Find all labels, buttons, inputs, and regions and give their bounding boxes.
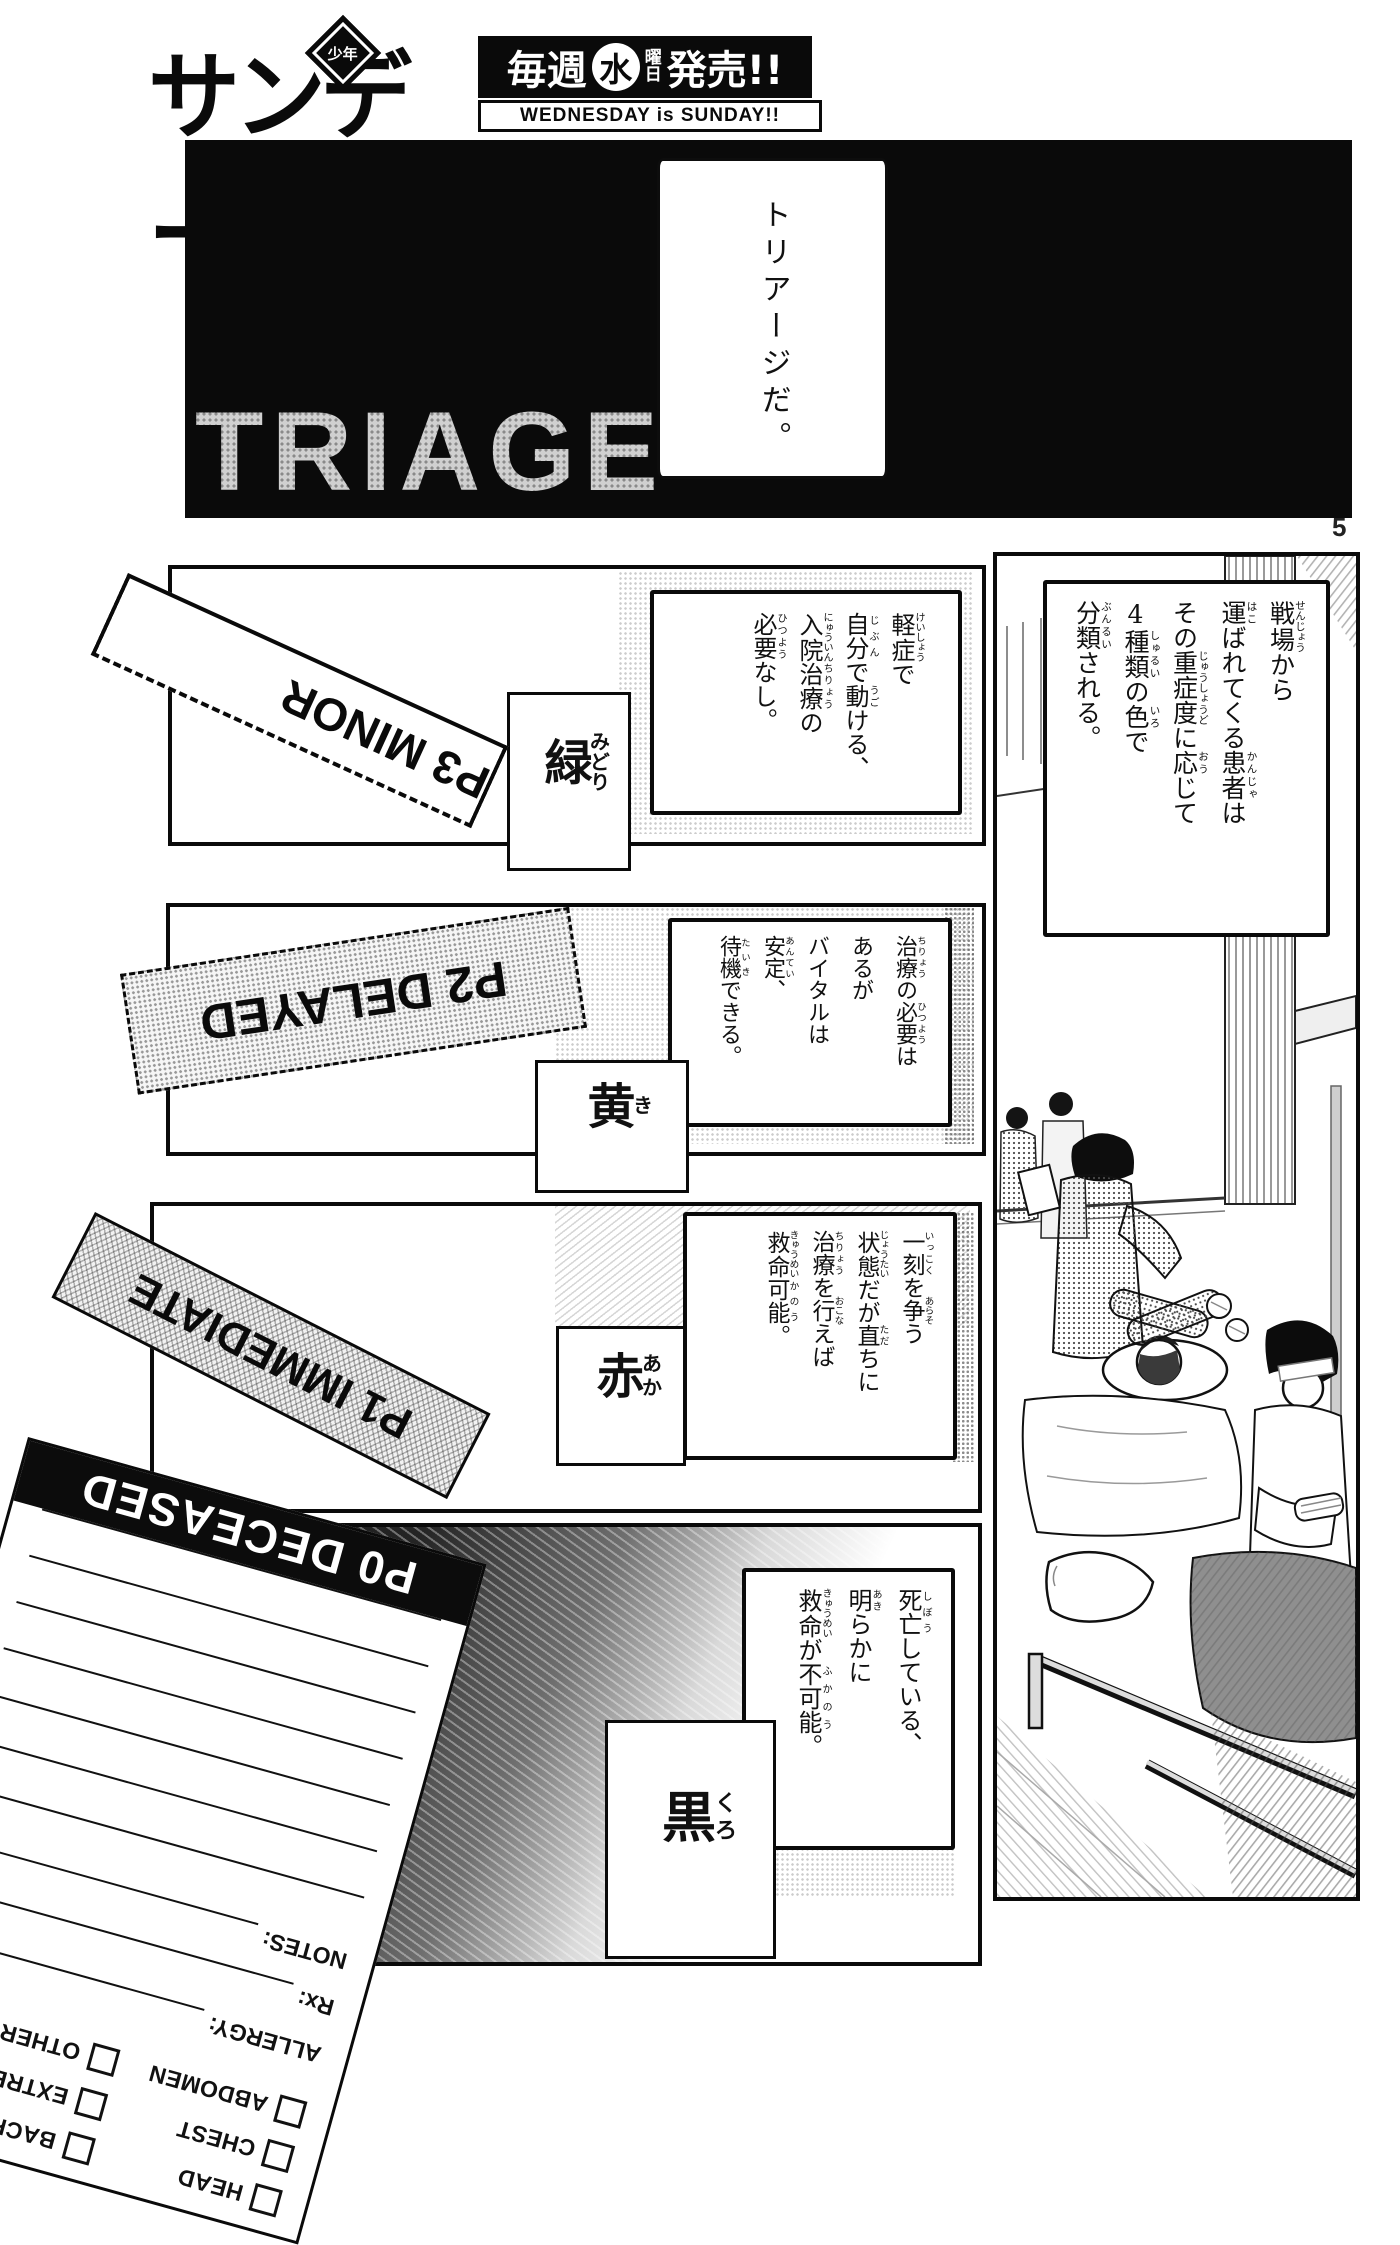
checkbox-icon bbox=[73, 2087, 107, 2121]
checkbox-icon bbox=[261, 2139, 295, 2173]
red-desc-col: 一刻いっこくを争あらそう bbox=[888, 1230, 933, 1442]
checkbox-label: HEAD bbox=[174, 2163, 246, 2207]
schedule-day-unit: 曜 日 bbox=[645, 50, 662, 85]
narration-col: 運はこばれてくる患者かんじゃは bbox=[1209, 600, 1258, 917]
schedule-pre: 毎週 bbox=[507, 38, 587, 96]
narration-col: 分類ぶんるいされる。 bbox=[1064, 600, 1113, 917]
green-desc-col: 軽症けいしょうで bbox=[878, 612, 924, 793]
checkbox-icon bbox=[61, 2131, 95, 2165]
tagline-strip: WEDNESDAY is SUNDAY!! bbox=[478, 100, 822, 132]
release-schedule-banner: 毎週 水 曜 日 発売!! bbox=[478, 36, 812, 98]
yellow-label: 黄き bbox=[572, 1063, 653, 1190]
narration-col: 4種類しゅるいの色いろで bbox=[1112, 600, 1161, 917]
checkbox-icon bbox=[248, 2183, 282, 2217]
green-desc-col: 自分じぶんで動うごける、 bbox=[832, 612, 878, 793]
checkbox-label: BACK bbox=[0, 2111, 59, 2155]
speech-bubble: トリアージだ。 bbox=[657, 158, 888, 479]
magazine-logo: サンデー 少年 bbox=[148, 20, 488, 135]
yellow-desc-col: 治療ちりょうの必要ひつようは bbox=[882, 935, 926, 1110]
green-label: 緑みどり bbox=[529, 695, 610, 868]
tagline-text: WEDNESDAY is SUNDAY!! bbox=[520, 105, 780, 127]
green-desc-col: 入院にゅういん治療ちりょうの bbox=[786, 612, 832, 793]
black-desc-col: 明あきらかに bbox=[833, 1588, 883, 1830]
page-number: 5 bbox=[1332, 512, 1346, 543]
black-label: 黒くろ bbox=[646, 1723, 736, 1956]
yellow-desc-col: あるが bbox=[838, 935, 882, 1110]
black-label-box: 黒くろ bbox=[605, 1720, 776, 1959]
checkbox-icon bbox=[86, 2042, 120, 2076]
yellow-desc-col: 待機たいきできる。 bbox=[706, 935, 750, 1110]
red-label: 赤あか bbox=[581, 1329, 662, 1463]
shonen-badge-label: 少年 bbox=[328, 42, 358, 63]
red-label-box: 赤あか bbox=[556, 1326, 686, 1466]
yellow-desc-col: バイタルは安定あんてい、 bbox=[750, 935, 838, 1110]
panel-title: TRIAGE bbox=[195, 387, 666, 516]
red-desc-col: 治療ちりょうを行おこなえば bbox=[798, 1230, 843, 1442]
black-desc-col: 救命きゅうめいが不可能ふかのう。 bbox=[783, 1588, 833, 1830]
green-label-box: 緑みどり bbox=[507, 692, 631, 871]
black-desc-col: 死亡しぼうしている、 bbox=[883, 1588, 933, 1830]
schedule-day: 水 bbox=[599, 43, 632, 91]
green-desc-col: 必要ひつようなし。 bbox=[740, 612, 786, 793]
narration-col: 戦場せんじょうから bbox=[1258, 600, 1307, 917]
green-description-box: 軽症けいしょうで 自分じぶんで動うごける、 入院にゅういん治療ちりょうの 必要ひ… bbox=[650, 590, 962, 815]
checkbox-icon bbox=[273, 2094, 307, 2128]
red-description-box: 一刻いっこくを争あらそう 状態じょうたいだが直ただちに 治療ちりょうを行おこなえ… bbox=[683, 1212, 957, 1460]
red-desc-col: 救命きゅうめい可能かのう。 bbox=[753, 1230, 798, 1442]
speech-text: トリアージだ。 bbox=[751, 199, 795, 458]
narration-box: 戦場せんじょうから 運はこばれてくる患者かんじゃは その重症度じゅうしょうどに応… bbox=[1043, 580, 1330, 937]
black-row-tone bbox=[770, 1847, 955, 1897]
wednesday-circle-icon: 水 bbox=[592, 43, 640, 91]
schedule-post: 発売!! bbox=[667, 38, 783, 96]
yellow-description-box: 治療ちりょうの必要ひつようは あるが バイタルは安定あんてい、 待機たいきできる… bbox=[668, 918, 952, 1127]
yellow-label-box: 黄き bbox=[535, 1060, 689, 1193]
narration-col: その重症度じゅうしょうどに応おうじて bbox=[1161, 600, 1210, 917]
red-desc-col: 状態じょうたいだが直ただちに bbox=[843, 1230, 888, 1442]
